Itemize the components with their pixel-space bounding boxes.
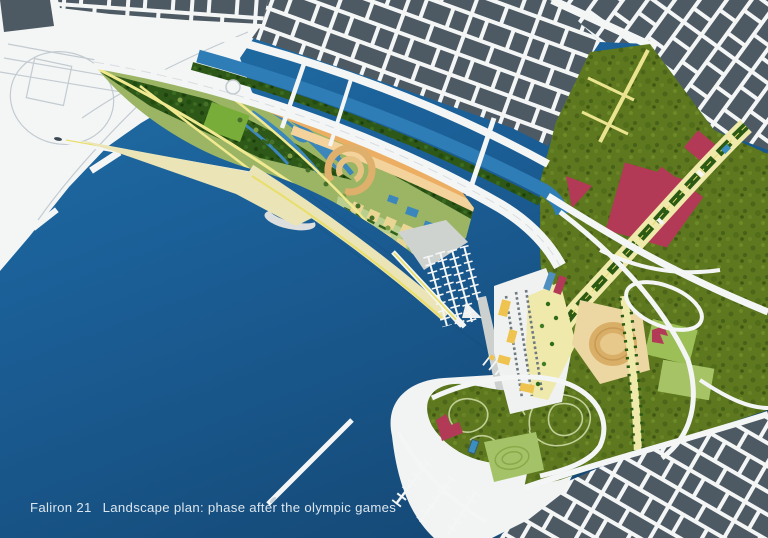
- caption: Faliron 21Landscape plan: phase after th…: [30, 500, 396, 515]
- caption-project: Faliron 21: [30, 500, 92, 515]
- roundabout: [226, 80, 240, 94]
- landscape-plan-map: Faliron 21Landscape plan: phase after th…: [0, 0, 768, 538]
- caption-description: Landscape plan: phase after the olympic …: [103, 500, 397, 515]
- map-svg: Faliron 21Landscape plan: phase after th…: [0, 0, 768, 538]
